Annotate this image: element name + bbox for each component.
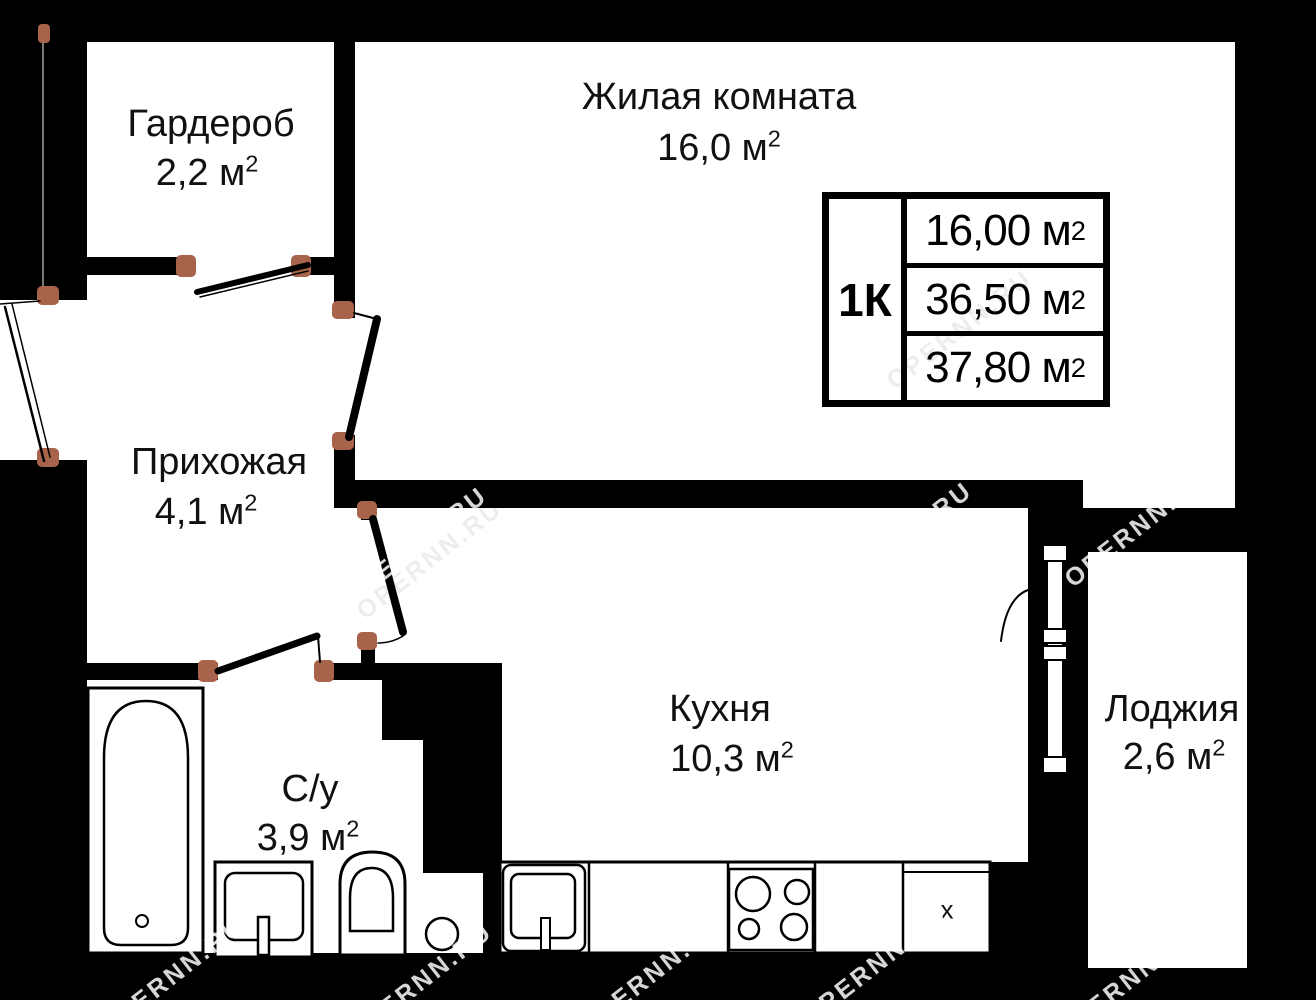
room-area-sup: 2 <box>245 150 258 176</box>
pipe-circle <box>426 918 458 950</box>
bathtub-drain <box>136 915 148 927</box>
wall-block-bath-corner <box>382 663 502 740</box>
wall-garderob-bottom-right <box>305 257 355 275</box>
stove-burner <box>781 914 807 940</box>
area-value: 37,80 м <box>925 343 1071 393</box>
apartment-info-table: 1К 16,00 м2 36,50 м2 37,80 м2 <box>822 192 1110 407</box>
area-apartment: 36,50 м2 <box>907 263 1103 332</box>
wall-living-bottom <box>352 480 1083 508</box>
room-area-value: 4,1 м <box>155 491 245 533</box>
area-value: 36,50 м <box>925 275 1071 325</box>
loggia-window <box>1043 545 1067 774</box>
room-name: Гардероб <box>127 103 294 145</box>
room-area-living: 16,0 м2 <box>657 129 781 167</box>
door-jamb <box>38 24 50 43</box>
wall-kitchen-corner <box>990 862 1028 953</box>
room-label-living: Жилая комната <box>582 78 856 116</box>
wall-bath-kitchen <box>423 740 502 873</box>
room-area-loggia: 2,6 м2 <box>1123 738 1226 776</box>
room-label-hall: Прихожая <box>131 443 307 481</box>
bathroom-sink <box>215 862 312 957</box>
room-area-bath: 3,9 м2 <box>257 819 360 857</box>
window-pad <box>1043 629 1067 643</box>
room-area-garderob: 2,2 м2 <box>156 154 259 192</box>
door-jamb <box>332 301 354 319</box>
exterior-boundary-line <box>42 42 44 300</box>
room-area-value: 3,9 м <box>257 817 347 859</box>
toilet <box>340 852 405 955</box>
room-area-sup: 2 <box>1212 734 1225 760</box>
apartment-areas: 16,00 м2 36,50 м2 37,80 м2 <box>907 199 1103 400</box>
room-area-sup: 2 <box>781 736 794 762</box>
door-jamb <box>357 632 377 650</box>
room-area-value: 2,6 м <box>1123 736 1213 778</box>
window-pad <box>1043 545 1067 561</box>
wall-garderob-bottom-left <box>87 257 180 275</box>
room-area-value: 2,2 м <box>156 152 246 194</box>
floor-plan: Гардероб 2,2 м2 Жилая комната 16,0 м2 Пр… <box>0 0 1316 1000</box>
bathtub <box>88 688 203 953</box>
window-pad <box>1043 646 1067 660</box>
room-area-value: 10,3 м <box>670 738 781 780</box>
room-name: Жилая комната <box>582 76 856 118</box>
room-label-loggia: Лоджия <box>1105 690 1240 728</box>
kitchen-counter <box>500 862 990 953</box>
kitchen-sink-tap <box>541 918 550 950</box>
room-area-kitchen: 10,3 м2 <box>670 740 794 778</box>
room-area-hall: 4,1 м2 <box>155 493 258 531</box>
stove-burner <box>785 880 809 904</box>
room-name: Прихожая <box>131 441 307 483</box>
stove-burner <box>739 919 759 939</box>
room-name: Кухня <box>669 688 771 730</box>
toilet-bowl <box>350 868 393 931</box>
stove-burner <box>736 877 770 911</box>
room-area-sup: 2 <box>768 125 781 151</box>
room-label-kitchen: Кухня <box>669 690 771 728</box>
room-area-value: 16,0 м <box>657 127 768 169</box>
area-living-total: 16,00 м2 <box>907 199 1103 263</box>
room-label-garderob: Гардероб <box>127 105 294 143</box>
room-name: С/у <box>282 768 339 810</box>
room-area-sup: 2 <box>346 815 359 841</box>
window-pad <box>1043 757 1067 773</box>
area-value: 16,00 м <box>925 206 1071 256</box>
apartment-type: 1К <box>829 199 907 400</box>
door-jamb <box>37 286 59 305</box>
room-label-bath: С/у <box>282 770 339 808</box>
vent-shaft-label: х <box>941 895 954 926</box>
area-total: 37,80 м2 <box>907 331 1103 400</box>
door-jamb <box>314 660 334 682</box>
bathtub-basin <box>104 701 188 945</box>
room-area-sup: 2 <box>244 489 257 515</box>
wall-garderob-living <box>334 42 355 318</box>
sink-tap <box>258 917 269 955</box>
entrance-door-pocket <box>0 300 87 460</box>
door-jamb <box>176 255 196 277</box>
room-name: Лоджия <box>1105 688 1240 730</box>
